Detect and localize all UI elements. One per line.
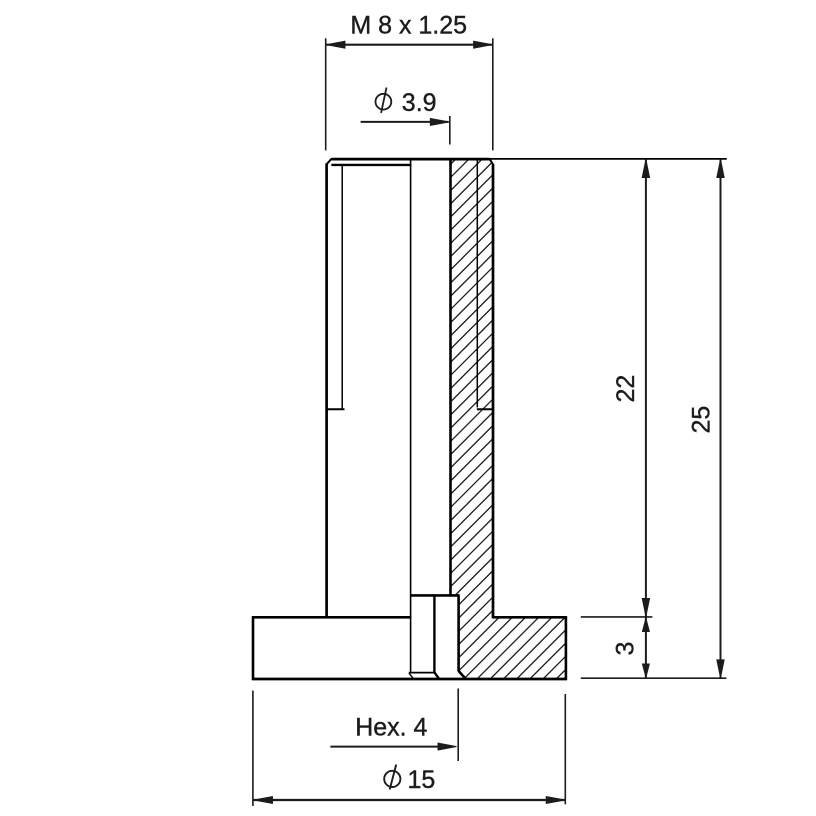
svg-text:15: 15 — [408, 766, 436, 794]
svg-text:25: 25 — [688, 406, 716, 434]
svg-text:M 8 x 1.25: M 8 x 1.25 — [350, 11, 467, 39]
svg-text:22: 22 — [612, 375, 640, 403]
svg-text:3: 3 — [612, 642, 640, 656]
svg-text:Hex. 4: Hex. 4 — [355, 713, 427, 741]
svg-text:3.9: 3.9 — [402, 89, 437, 117]
